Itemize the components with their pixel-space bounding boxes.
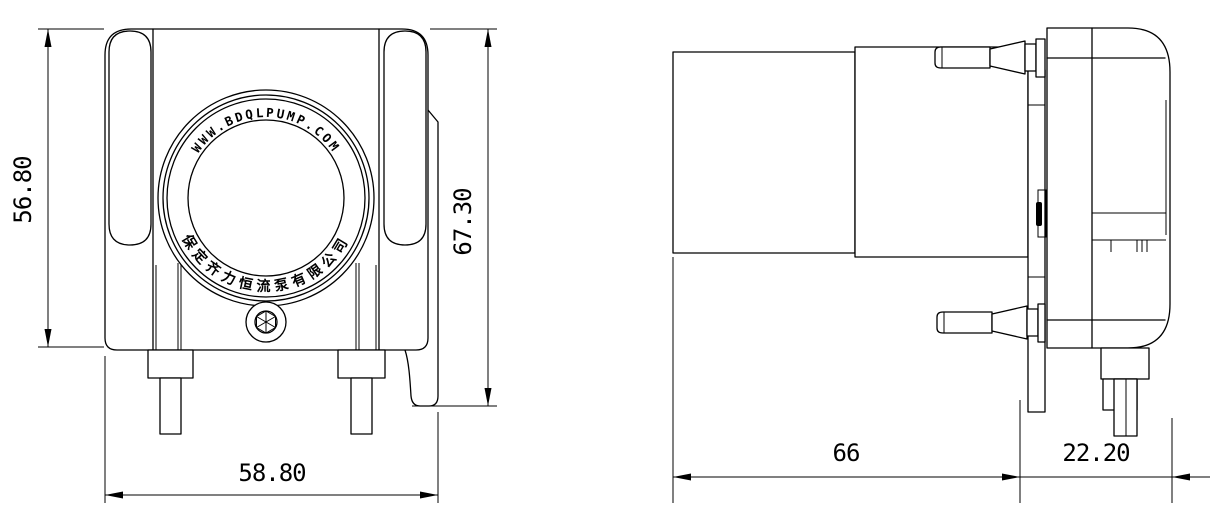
mounting-plate (1028, 70, 1045, 412)
dimension-label-front-height: 56.80 (9, 156, 37, 223)
side-view (673, 28, 1170, 436)
clamp-lever-right (384, 31, 426, 245)
gearbox-body (855, 47, 1028, 257)
dimension-front-height: 56.80 (9, 29, 104, 347)
motor-body (673, 52, 855, 253)
screw-head-icon (246, 302, 286, 342)
foot-leg-left (160, 378, 181, 434)
dimension-label-side-body-length: 66 (833, 439, 860, 467)
dimension-label-side-head-depth: 22.20 (1062, 439, 1129, 467)
dimension-label-front-total-height: 67.30 (449, 188, 477, 255)
hose-barb-lower (937, 304, 1045, 342)
front-feet (148, 350, 385, 434)
dimension-label-front-width: 58.80 (238, 459, 305, 487)
foot-block-right (338, 350, 385, 378)
rotor-housing-outer-circle (158, 90, 374, 306)
foot-block-left (148, 350, 193, 378)
side-foot-block (1101, 348, 1149, 379)
pump-head-side (1047, 28, 1170, 348)
drawing-page: WWW.BDQLPUMP.COM 保定齐力恒流泵有限公司 (0, 0, 1226, 517)
technical-drawing-canvas: WWW.BDQLPUMP.COM 保定齐力恒流泵有限公司 (0, 0, 1226, 517)
dimension-side-body-length: 66 (673, 257, 1020, 503)
side-foot (1101, 348, 1149, 436)
clamp-lever-left (109, 31, 151, 245)
front-view: WWW.BDQLPUMP.COM 保定齐力恒流泵有限公司 (105, 29, 438, 434)
foot-leg-right (351, 378, 372, 434)
